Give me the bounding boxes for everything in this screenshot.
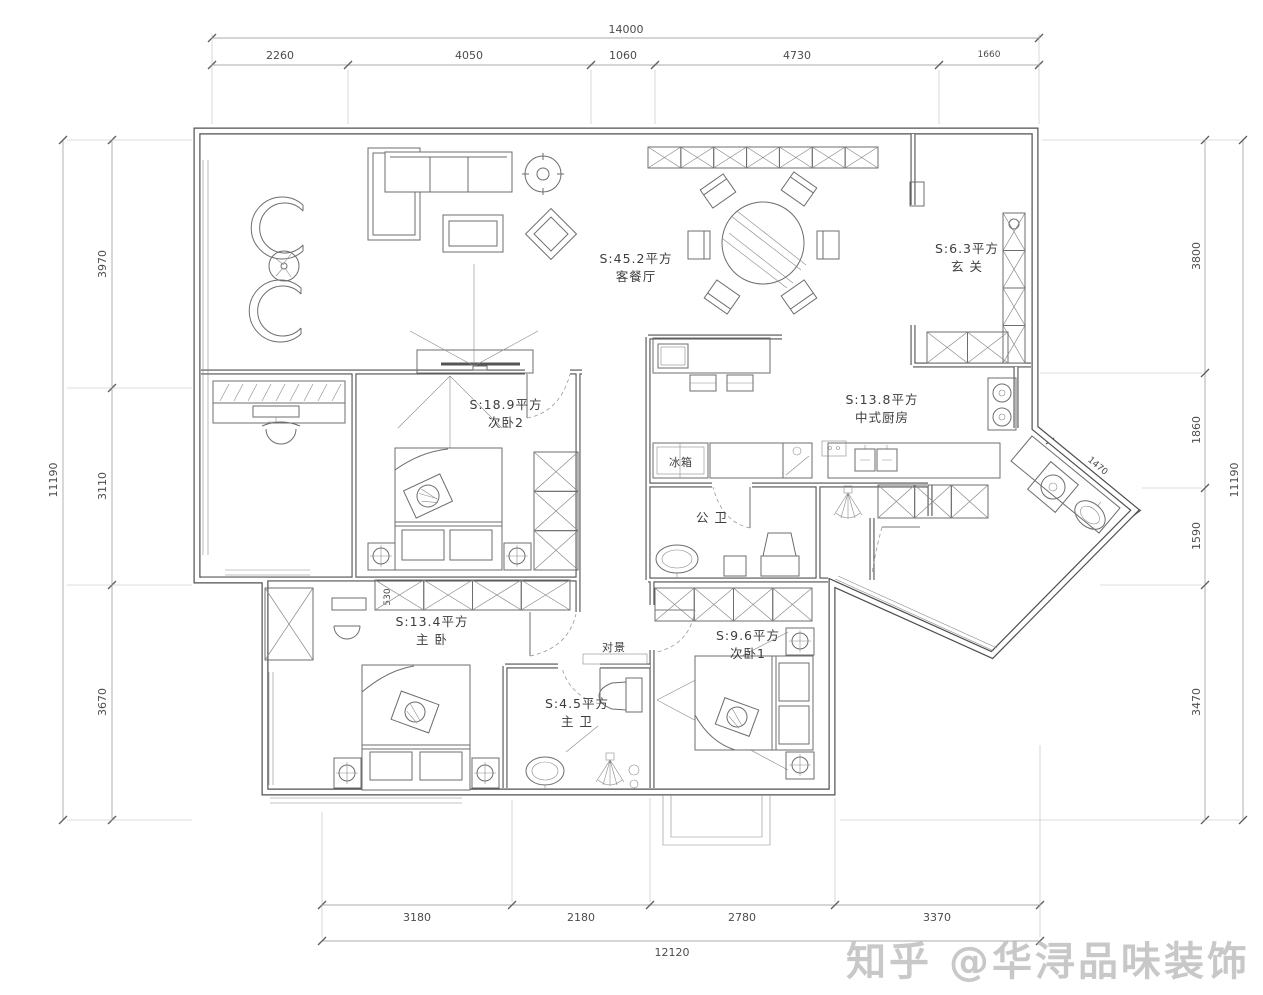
dim-top-seg-1: 4050 bbox=[455, 49, 483, 62]
dim-wardrobe-depth: 530 bbox=[383, 588, 393, 605]
entrance-area: S:6.3平方 bbox=[935, 241, 999, 256]
dimension-chain-top: 14000 2260 4050 1060 4730 1660 bbox=[208, 23, 1043, 124]
dim-right-seg-2: 1590 bbox=[1190, 522, 1203, 550]
kitchen-counters bbox=[710, 441, 1000, 478]
dim-top-total: 14000 bbox=[609, 23, 644, 36]
bedroom1-wardrobe bbox=[655, 588, 812, 621]
master-bath-name: 主 卫 bbox=[561, 714, 593, 729]
outer-walls-inner bbox=[197, 131, 1135, 792]
coffee-table bbox=[443, 215, 503, 252]
dim-bottom-seg-0: 3180 bbox=[403, 911, 431, 924]
tv-cabinet bbox=[410, 264, 538, 373]
bedroom2-wardrobe bbox=[534, 452, 578, 570]
laundry-cabinets bbox=[878, 485, 988, 518]
watermark: 知乎 @华浔品味装饰 bbox=[846, 939, 1250, 985]
living-room-area: S:45.2平方 bbox=[600, 251, 673, 266]
entrance-bottom-cabinet bbox=[927, 332, 1008, 363]
bedroom2-name: 次卧2 bbox=[488, 415, 524, 430]
dining-table bbox=[688, 172, 839, 314]
master-bath-area: S:4.5平方 bbox=[545, 696, 609, 711]
entrance-shoe-cabinet bbox=[1003, 213, 1025, 363]
outer-walls bbox=[197, 131, 1135, 792]
public-bath-name: 公 卫 bbox=[696, 510, 728, 525]
dim-bottom-seg-1: 2180 bbox=[567, 911, 595, 924]
floor-plan-page: 14000 2260 4050 1060 4730 1660 11190 397… bbox=[0, 0, 1263, 995]
interior-walls-inner bbox=[201, 134, 1031, 788]
dim-bottom-seg-2: 2780 bbox=[728, 911, 756, 924]
bed bbox=[695, 656, 813, 750]
shower-head-icon bbox=[596, 753, 624, 786]
dim-top-seg-2: 1060 bbox=[609, 49, 637, 62]
dim-bottom-total: 12120 bbox=[655, 946, 690, 959]
master-bathroom-fixtures bbox=[526, 678, 642, 789]
plant-side-table bbox=[269, 251, 299, 281]
living-room-name: 客餐厅 bbox=[616, 269, 657, 284]
dim-left-seg-1: 3110 bbox=[96, 472, 109, 500]
bed bbox=[395, 448, 502, 570]
washing-machine bbox=[1028, 462, 1079, 513]
accent-armchair bbox=[526, 209, 577, 260]
floor-lamp bbox=[525, 156, 561, 192]
dim-right-total: 11190 bbox=[1228, 463, 1241, 498]
balcony-study bbox=[213, 381, 345, 444]
dim-left-total: 11190 bbox=[47, 463, 60, 498]
kitchen-area: S:13.8平方 bbox=[846, 392, 919, 407]
radiator-strip bbox=[213, 381, 345, 403]
shower-head-icon bbox=[834, 486, 862, 519]
fridge-label: 冰箱 bbox=[669, 455, 693, 469]
dresser bbox=[332, 598, 366, 610]
dim-left-seg-0: 3970 bbox=[96, 250, 109, 278]
dim-top-seg-0: 2260 bbox=[266, 49, 294, 62]
master-wardrobe bbox=[375, 580, 570, 610]
dim-top-seg-4: 1660 bbox=[978, 50, 1001, 60]
kitchen-name: 中式厨房 bbox=[855, 410, 909, 425]
dim-left-seg-2: 3670 bbox=[96, 688, 109, 716]
bath-cabinet bbox=[724, 556, 746, 576]
view-feature-label: 对景 bbox=[602, 640, 626, 654]
desk-chair bbox=[334, 626, 360, 639]
bedroom1-name: 次卧1 bbox=[730, 646, 766, 661]
dim-right-seg-0: 3800 bbox=[1190, 242, 1203, 270]
interior-walls bbox=[201, 134, 1031, 788]
kitchen-island bbox=[653, 338, 770, 391]
floor-plan-drawing: 14000 2260 4050 1060 4730 1660 11190 397… bbox=[0, 0, 1263, 995]
gas-stove bbox=[988, 378, 1016, 430]
dim-right-seg-3: 3470 bbox=[1190, 688, 1203, 716]
dim-right-seg-1: 1860 bbox=[1190, 416, 1203, 444]
monitor bbox=[253, 406, 299, 417]
dim-bottom-seg-3: 3370 bbox=[923, 911, 951, 924]
entrance-cabinet-detail bbox=[1009, 219, 1019, 229]
dim-top-seg-3: 4730 bbox=[783, 49, 811, 62]
curved-chairs bbox=[249, 197, 303, 342]
dining-wall-cabinets bbox=[648, 147, 878, 168]
dimension-chain-left: 11190 3970 3110 3670 bbox=[47, 136, 192, 824]
toilet bbox=[761, 533, 799, 576]
entrance-name: 玄 关 bbox=[951, 259, 983, 274]
bedroom2-area: S:18.9平方 bbox=[470, 397, 543, 412]
structural-column-box bbox=[265, 588, 313, 660]
bedroom1-area: S:9.6平方 bbox=[716, 628, 780, 643]
master-bedroom-name: 主 卧 bbox=[416, 632, 448, 647]
public-bathroom-fixtures bbox=[656, 533, 799, 578]
view-niche bbox=[583, 654, 647, 664]
master-bedroom-area: S:13.4平方 bbox=[396, 614, 469, 629]
desk-chair bbox=[262, 422, 300, 444]
